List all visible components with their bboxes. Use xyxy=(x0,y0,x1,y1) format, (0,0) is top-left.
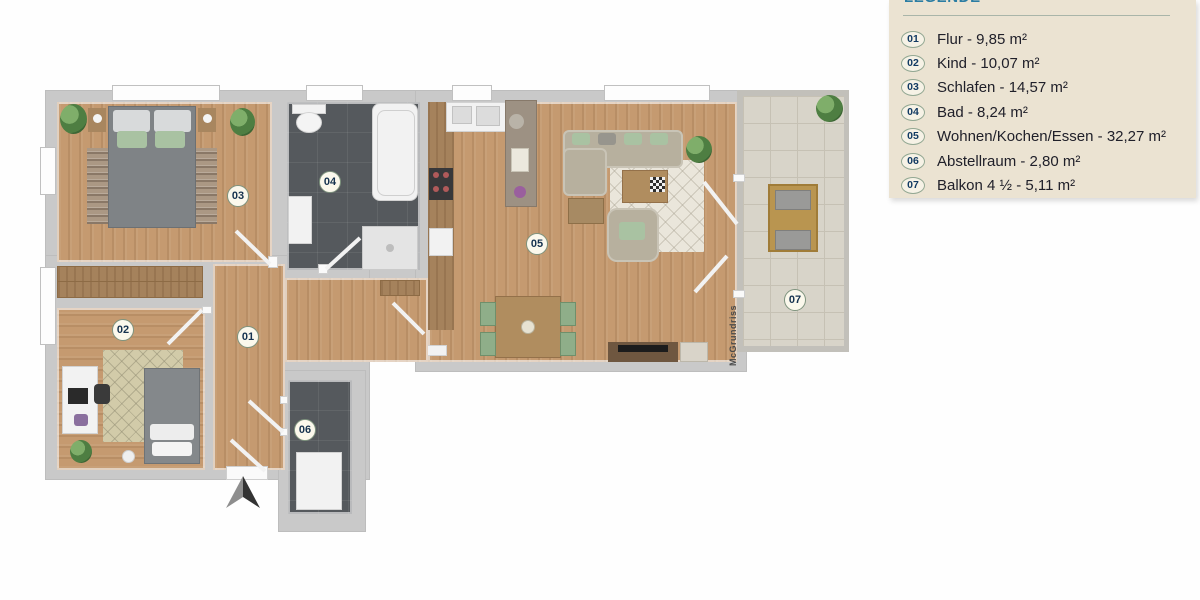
window-bedroom-left xyxy=(40,147,56,195)
sofa-pillow-4 xyxy=(650,133,668,145)
washing-machine xyxy=(296,452,342,510)
armchair-cushion xyxy=(619,222,645,240)
legend-items: 01 Flur - 9,85 m² 02 Kind - 10,07 m² 03 … xyxy=(901,27,1190,198)
jamb-storage-door-2 xyxy=(280,428,288,436)
dining-chair-1 xyxy=(480,302,496,326)
dishwasher xyxy=(429,228,453,256)
legend-badge-04: 04 xyxy=(901,104,925,121)
watermark-text: McGrundriss xyxy=(728,296,738,366)
jamb-kid-door xyxy=(202,306,212,314)
desk-laptop xyxy=(68,388,88,404)
bed-pillow-right xyxy=(154,110,191,132)
floorplan-page: McGrundriss 01 02 03 04 05 06 07 LEGENDE… xyxy=(0,0,1200,600)
legend-row-kind: 02 Kind - 10,07 m² xyxy=(901,51,1190,75)
dining-chair-2 xyxy=(480,332,496,356)
jamb-bedroom-door xyxy=(268,256,278,268)
sofa-chaise xyxy=(563,148,607,196)
side-table xyxy=(568,198,604,224)
dining-decor xyxy=(521,320,535,334)
stove-burner-3 xyxy=(433,186,439,192)
tv xyxy=(618,345,668,352)
sink-basin-left xyxy=(452,106,472,124)
stove-burner-2 xyxy=(443,172,449,178)
window-living-top xyxy=(604,85,710,101)
entrance-opening xyxy=(226,466,268,480)
bedroom-plant-right xyxy=(230,108,255,136)
room-01-floor-vertical xyxy=(213,264,285,470)
room-badge-01: 01 xyxy=(237,326,259,348)
balcony-chair-top xyxy=(775,190,811,210)
legend-divider xyxy=(903,15,1170,16)
wardrobe xyxy=(57,266,203,298)
coffee-table-tray xyxy=(650,177,665,192)
legend-label-wohnen: Wohnen/Kochen/Essen - 32,27 m² xyxy=(937,128,1166,145)
balcony-chair-bottom xyxy=(775,230,811,250)
dining-chair-4 xyxy=(560,332,576,356)
bed-cushion-left xyxy=(117,131,147,148)
legend-badge-03: 03 xyxy=(901,79,925,96)
north-arrow-icon-dark xyxy=(243,476,260,508)
legend-label-abstellraum: Abstellraum - 2,80 m² xyxy=(937,153,1080,170)
stove-burner-1 xyxy=(433,172,439,178)
kid-stool xyxy=(122,450,135,463)
legend-label-schlafen: Schlafen - 14,57 m² xyxy=(937,79,1068,96)
sofa-pillow-3 xyxy=(624,133,642,145)
island-flower xyxy=(514,186,526,198)
legend-badge-02: 02 xyxy=(901,55,925,72)
desk-decor xyxy=(74,414,88,426)
sofa-pillow-2 xyxy=(598,133,616,145)
legend-label-kind: Kind - 10,07 m² xyxy=(937,55,1040,72)
window-kitchen-top xyxy=(452,85,492,101)
lamp-left xyxy=(93,114,102,123)
bed-pillow-left xyxy=(113,110,150,132)
living-plant xyxy=(686,136,712,163)
kid-plant xyxy=(70,440,92,463)
legend-label-balkon: Balkon 4 ½ - 5,11 m² xyxy=(937,177,1075,194)
room-badge-03: 03 xyxy=(227,185,249,207)
legend-panel: LEGENDE 01 Flur - 9,85 m² 02 Kind - 10,0… xyxy=(889,0,1196,198)
room-badge-06: 06 xyxy=(294,419,316,441)
sink-basin-right xyxy=(476,106,500,126)
window-bedroom-top xyxy=(112,85,220,101)
shower-drain xyxy=(386,244,394,252)
legend-row-wohnen: 05 Wohnen/Kochen/Essen - 32,27 m² xyxy=(901,125,1190,149)
kitchen-counter-left xyxy=(428,102,454,330)
legend-row-balkon: 07 Balkon 4 ½ - 5,11 m² xyxy=(901,173,1190,197)
bathtub-inner xyxy=(377,110,415,196)
sofa-pillow-1 xyxy=(572,133,590,145)
island-stool xyxy=(509,114,524,129)
legend-badge-07: 07 xyxy=(901,177,925,194)
legend-row-schlafen: 03 Schlafen - 14,57 m² xyxy=(901,76,1190,100)
legend-row-flur: 01 Flur - 9,85 m² xyxy=(901,27,1190,51)
room-badge-07: 07 xyxy=(784,289,806,311)
legend-badge-05: 05 xyxy=(901,128,925,145)
wardrobe-divider xyxy=(58,281,202,282)
balcony-plant xyxy=(816,95,843,122)
legend-badge-01: 01 xyxy=(901,31,925,48)
window-kid-left xyxy=(40,267,56,345)
washbasin xyxy=(288,196,312,244)
kid-bed-pillow-1 xyxy=(150,424,194,440)
jamb-balcony-door-top xyxy=(733,174,745,182)
lamp-right xyxy=(203,114,212,123)
legend-title: LEGENDE xyxy=(904,0,981,7)
desk-chair xyxy=(94,384,110,404)
stove-burner-4 xyxy=(443,186,449,192)
cabinet xyxy=(680,342,708,362)
room-badge-05: 05 xyxy=(526,233,548,255)
toilet-bowl xyxy=(296,112,322,133)
room-badge-04: 04 xyxy=(319,171,341,193)
north-arrow-icon xyxy=(226,476,243,508)
hall-wardrobe xyxy=(380,280,420,296)
bedroom-plant-left xyxy=(60,104,87,134)
legend-label-bad: Bad - 8,24 m² xyxy=(937,104,1028,121)
room-badge-02: 02 xyxy=(112,319,134,341)
legend-badge-06: 06 xyxy=(901,153,925,170)
kid-bed-pillow-2 xyxy=(152,442,192,456)
window-bath-top xyxy=(306,85,363,101)
bed-cushion-right xyxy=(155,131,185,148)
pet-bowl-tray xyxy=(427,345,447,356)
jamb-bath-door xyxy=(318,264,328,274)
legend-label-flur: Flur - 9,85 m² xyxy=(937,31,1027,48)
dining-chair-3 xyxy=(560,302,576,326)
legend-row-abstellraum: 06 Abstellraum - 2,80 m² xyxy=(901,149,1190,173)
island-decor-plate xyxy=(511,148,529,172)
legend-row-bad: 04 Bad - 8,24 m² xyxy=(901,100,1190,124)
jamb-storage-door xyxy=(280,396,288,404)
